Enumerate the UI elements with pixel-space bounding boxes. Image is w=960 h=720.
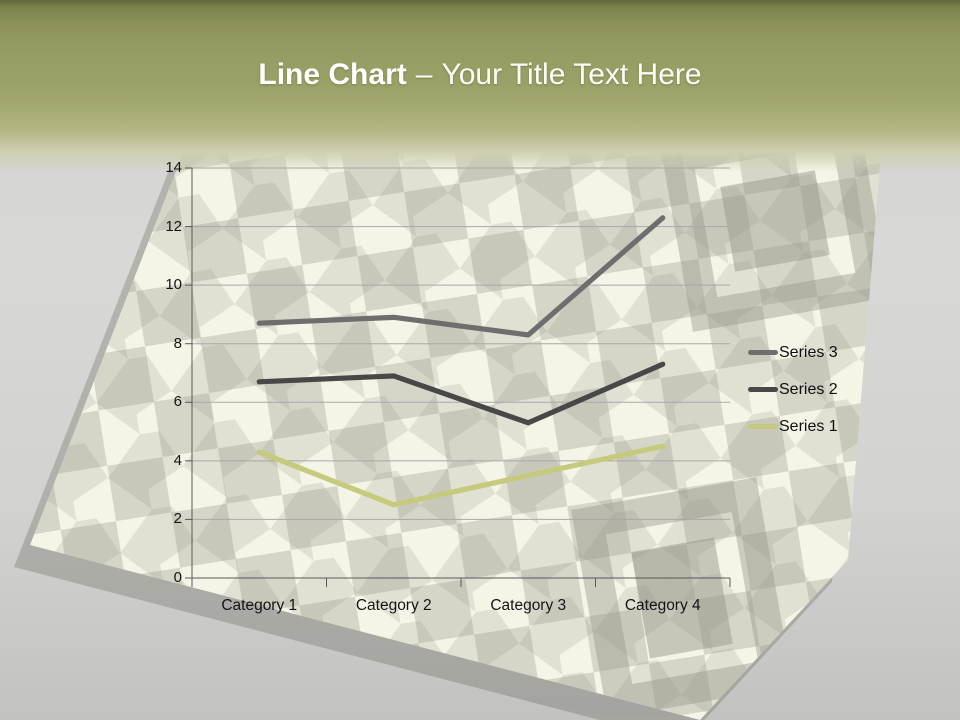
y-axis-label: 10	[110, 276, 182, 294]
series-line-series-2	[259, 364, 663, 423]
presentation-slide: Line Chart–Your Title Text Here 02468101…	[0, 0, 960, 720]
x-axis-label: Category 4	[595, 597, 731, 615]
series-line-series-3	[259, 218, 663, 335]
x-axis-label: Category 2	[326, 597, 462, 615]
legend-label: Series 2	[779, 381, 838, 399]
y-axis-label: 0	[110, 569, 182, 587]
y-axis-label: 6	[110, 393, 182, 411]
legend-item: Series 2	[748, 371, 838, 408]
y-axis-label: 8	[110, 335, 182, 353]
y-axis-label: 4	[110, 452, 182, 470]
y-axis-label: 2	[110, 510, 182, 528]
y-axis-label: 12	[110, 218, 182, 236]
legend-swatch	[748, 350, 778, 355]
chart-legend: Series 3Series 2Series 1	[748, 334, 838, 445]
legend-item: Series 1	[748, 408, 838, 445]
x-axis-label: Category 3	[460, 597, 596, 615]
x-axis-label: Category 1	[191, 597, 327, 615]
legend-swatch	[748, 424, 778, 429]
legend-item: Series 3	[748, 334, 838, 371]
legend-swatch	[748, 387, 778, 392]
line-chart: 02468101214 Category 1Category 2Category…	[0, 0, 960, 720]
legend-label: Series 3	[779, 344, 838, 362]
y-axis-label: 14	[110, 159, 182, 177]
legend-label: Series 1	[779, 418, 838, 436]
series-line-series-1	[259, 446, 663, 505]
